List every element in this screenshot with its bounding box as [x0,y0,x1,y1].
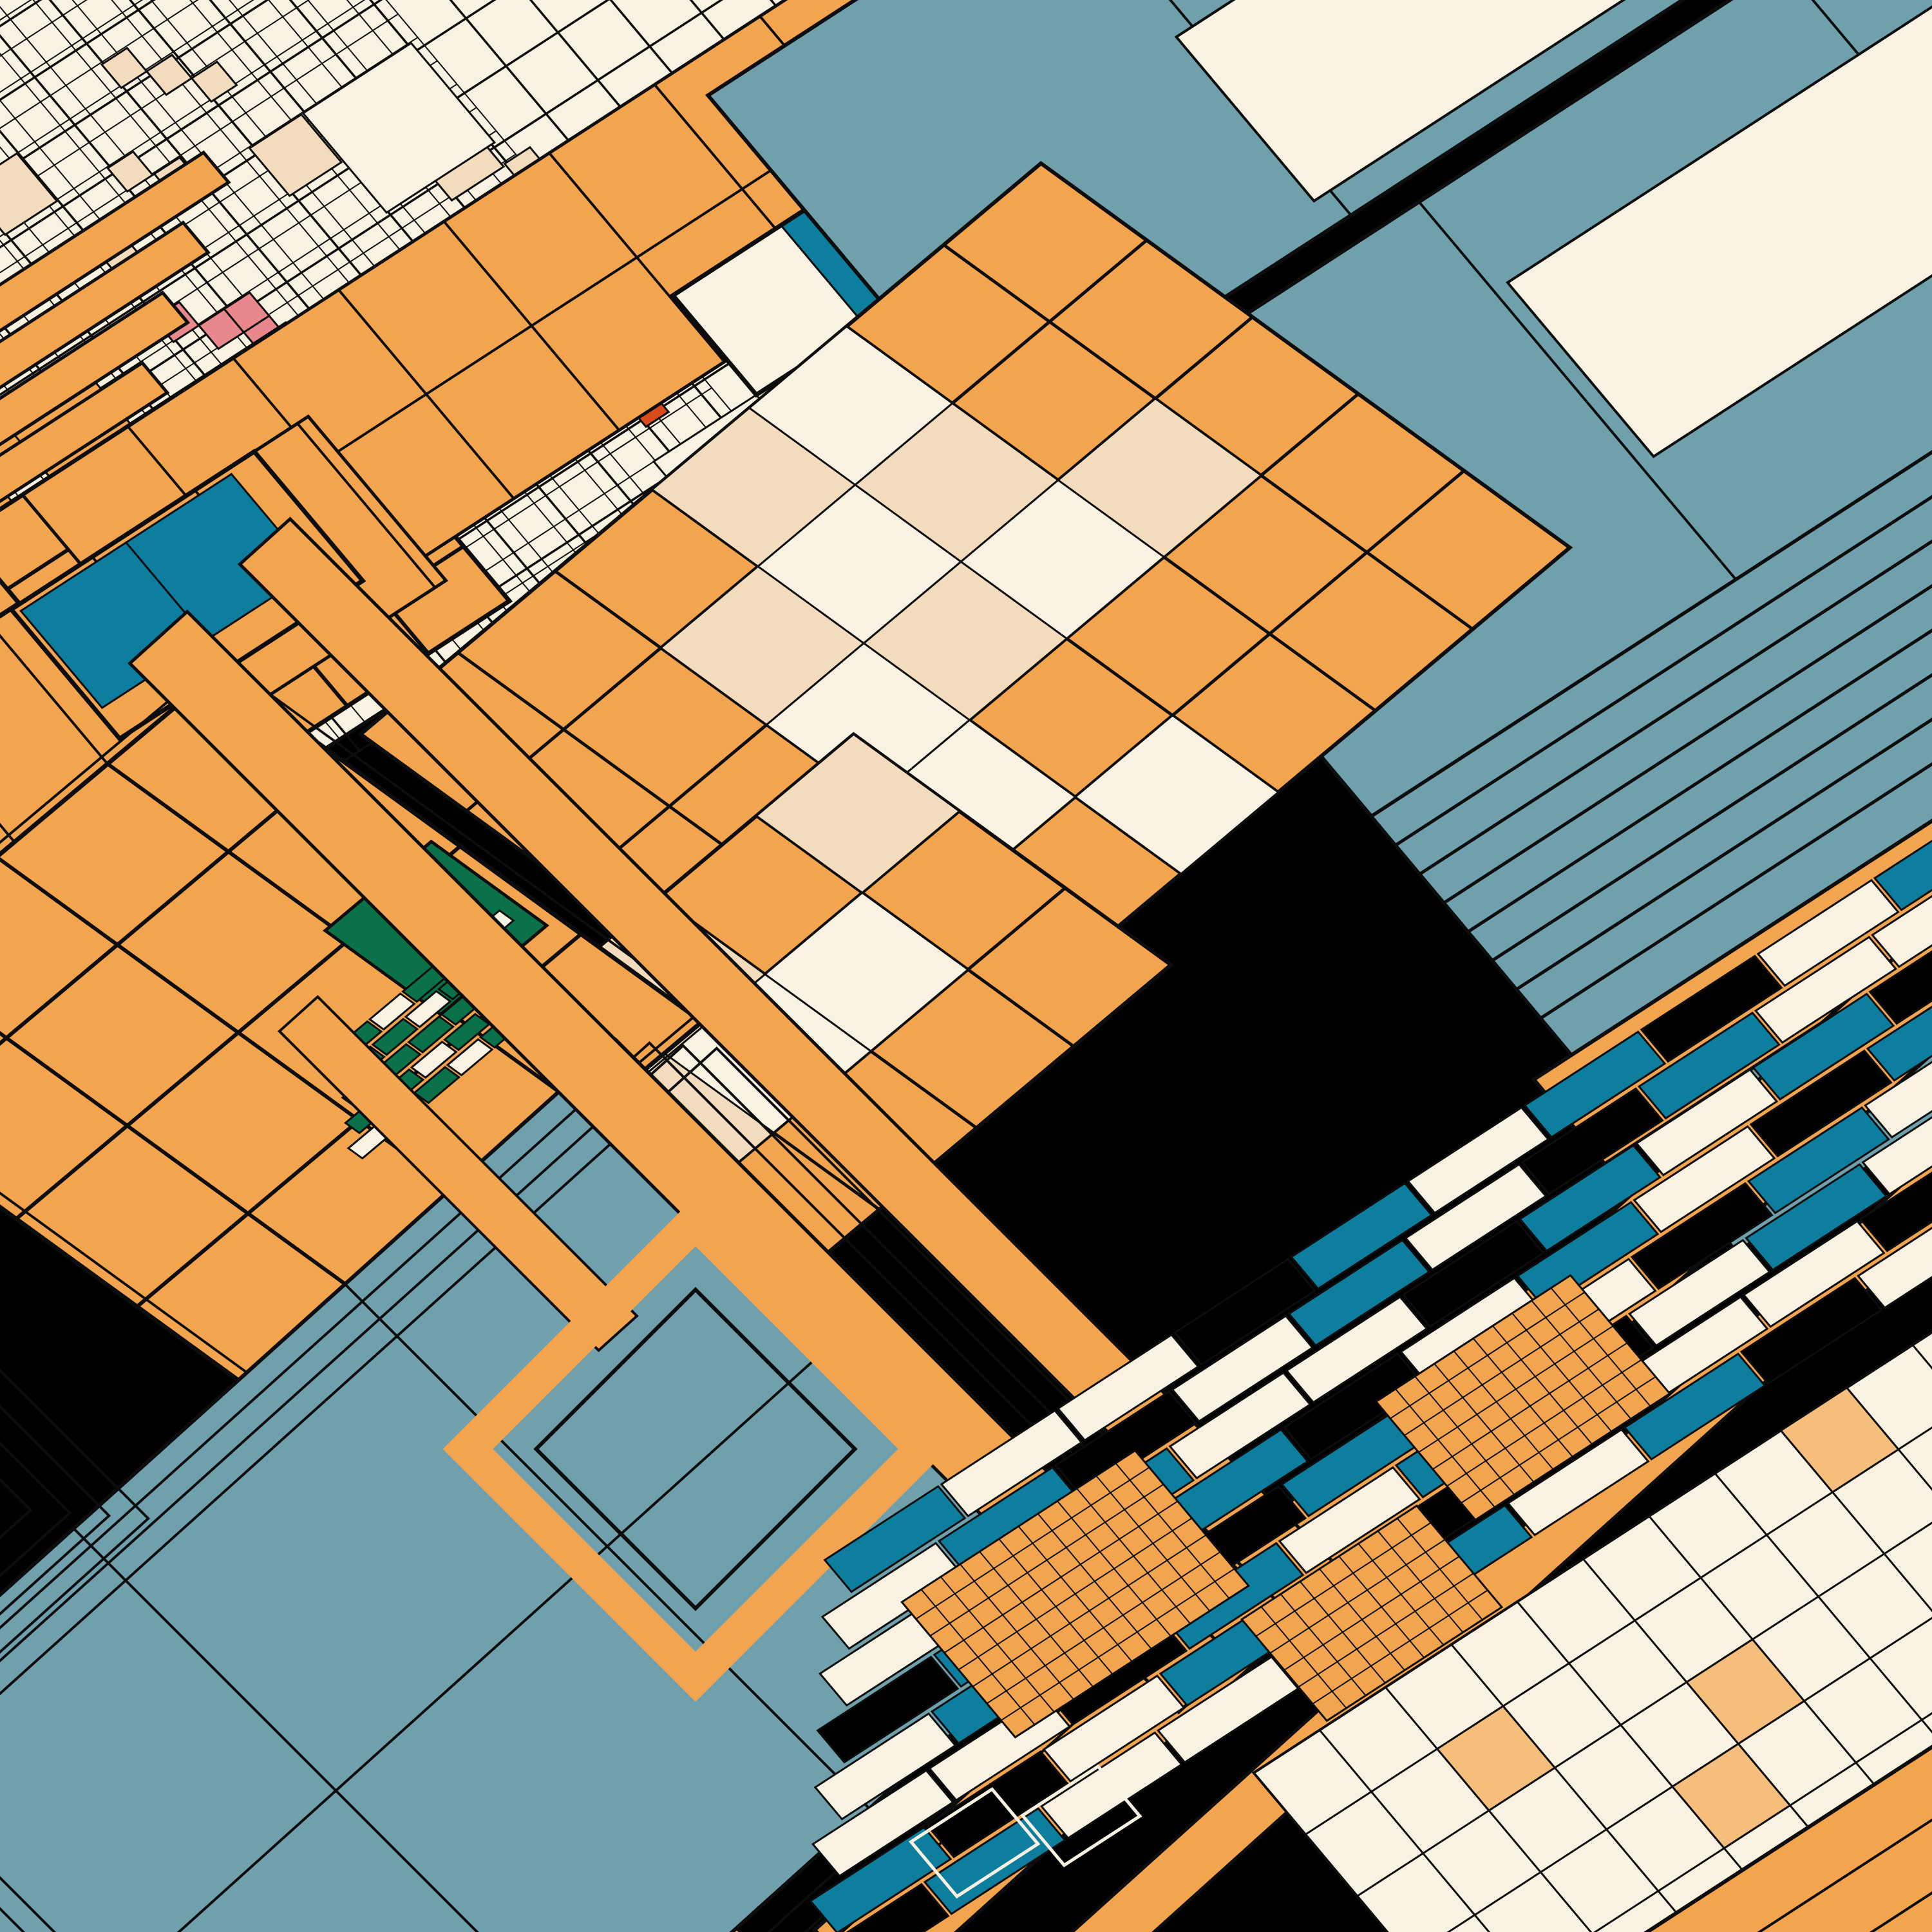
abstract-artwork [0,0,1932,1932]
artwork-canvas [0,0,1932,1932]
